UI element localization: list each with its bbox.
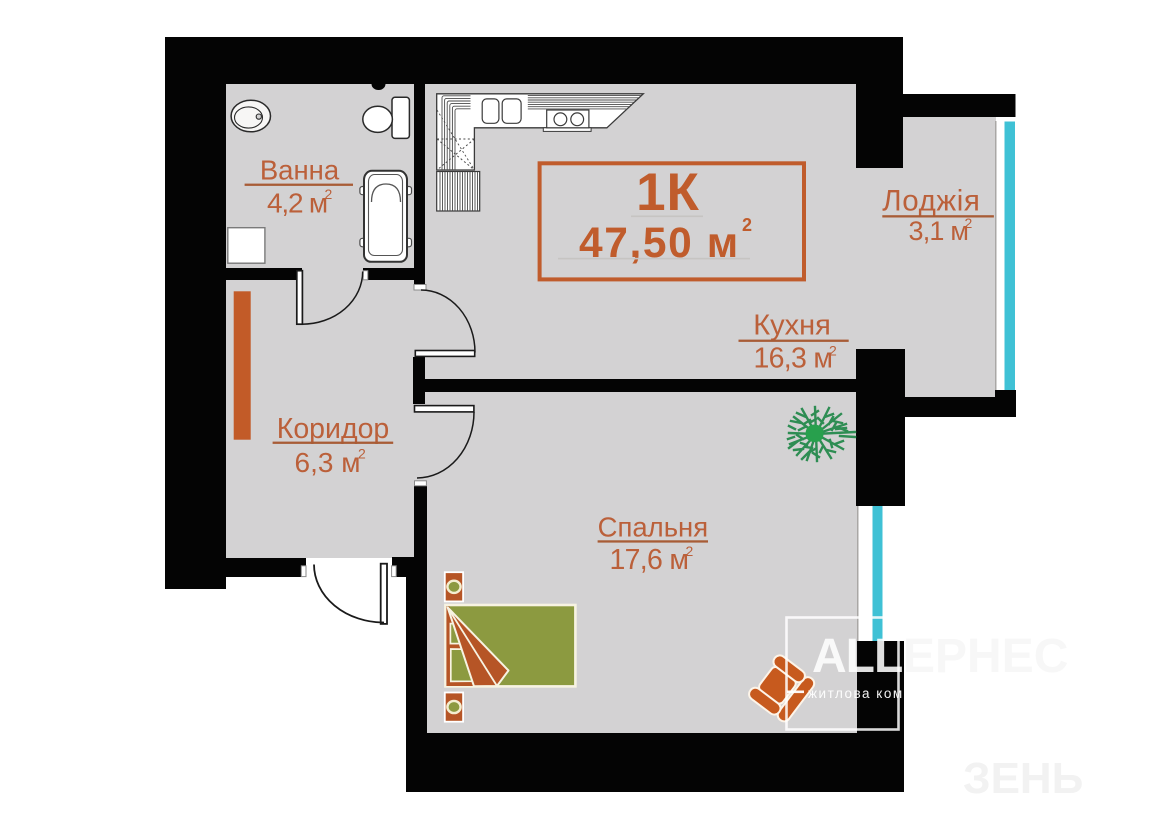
svg-text:ALL: ALL xyxy=(812,630,902,683)
svg-text:16,3 м: 16,3 м xyxy=(754,342,833,374)
svg-text:Лоджія: Лоджія xyxy=(882,184,980,217)
svg-text:Спальня: Спальня xyxy=(598,512,709,543)
svg-text:житлова компанія: житлова компанія xyxy=(808,686,944,701)
svg-text:3,1 м: 3,1 м xyxy=(909,216,969,246)
svg-text:Ванна: Ванна xyxy=(260,154,340,185)
svg-text:2: 2 xyxy=(742,215,752,235)
svg-text:2: 2 xyxy=(686,543,694,559)
svg-text:2: 2 xyxy=(358,446,366,462)
svg-text:ЗЕНЬ: ЗЕНЬ xyxy=(963,754,1083,803)
svg-text:17,6 м: 17,6 м xyxy=(610,544,689,576)
svg-text:2: 2 xyxy=(965,215,973,231)
svg-text:Коридор: Коридор xyxy=(277,413,390,445)
svg-text:4,2 м: 4,2 м xyxy=(267,188,327,219)
svg-text:2: 2 xyxy=(829,343,837,359)
svg-text:1К: 1К xyxy=(636,163,700,222)
svg-text:ЕРНЕС: ЕРНЕС xyxy=(903,630,1068,683)
svg-text:2: 2 xyxy=(325,186,333,202)
svg-text:Кухня: Кухня xyxy=(753,310,831,342)
svg-text:6,3 м: 6,3 м xyxy=(295,447,361,478)
svg-text:47,50 м: 47,50 м xyxy=(579,220,740,267)
